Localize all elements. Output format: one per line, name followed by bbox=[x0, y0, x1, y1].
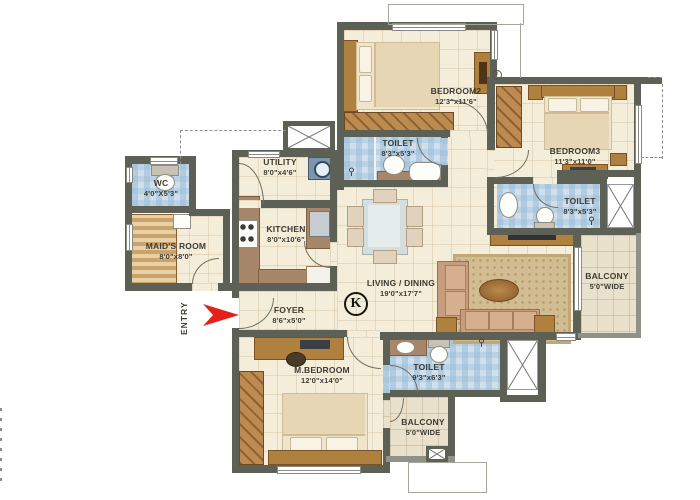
window bbox=[126, 224, 133, 251]
balcony-rail bbox=[578, 333, 641, 338]
washing-machine-door bbox=[314, 161, 331, 178]
wall bbox=[337, 22, 344, 190]
balcony-right-label: BALCONY 5'0"WIDE bbox=[576, 271, 638, 291]
window bbox=[556, 333, 576, 341]
living-dining-label: LIVING / DINING 19'0"x17'7" bbox=[352, 278, 450, 298]
wall bbox=[538, 337, 546, 402]
projection-dashed-line bbox=[648, 77, 662, 78]
maids-room-label: MAID'S ROOM 8'0"x8'0" bbox=[134, 241, 218, 261]
bedroom3-blanket bbox=[545, 112, 609, 149]
window bbox=[150, 157, 178, 165]
bedroom2-dresser-top bbox=[479, 62, 487, 84]
shower-icon bbox=[587, 216, 596, 225]
mbedroom-wardrobe bbox=[239, 371, 264, 465]
room-dims: 8'0"x8'0" bbox=[134, 252, 218, 261]
kitchen-label: KITCHEN 8'0"x10'6" bbox=[250, 224, 322, 244]
door-gap bbox=[383, 365, 390, 393]
mbedroom-blanket bbox=[283, 394, 365, 436]
room-name: BEDROOM2 bbox=[431, 86, 482, 96]
room-dims: 12'0"x14'0" bbox=[280, 376, 364, 385]
window bbox=[277, 466, 361, 474]
dining-chair bbox=[406, 206, 423, 227]
toilet2-wc bbox=[383, 155, 405, 175]
entry-arrow-icon bbox=[202, 302, 240, 328]
cropped-edge-marks bbox=[0, 408, 2, 486]
window bbox=[635, 105, 642, 164]
master-toilet-label: TOILET 9'3"x6'3" bbox=[397, 362, 461, 382]
floor-plan: x K ENTRY BEDROOM2 12'3"x11'6" TOILET 8'… bbox=[0, 0, 700, 500]
door-gap bbox=[487, 150, 495, 177]
sofa-cushion bbox=[465, 311, 489, 330]
dining-chair bbox=[373, 189, 397, 203]
wall bbox=[330, 266, 337, 291]
wc-label: WC 4'0"X5'3" bbox=[130, 178, 192, 198]
dining-chair bbox=[347, 206, 364, 227]
room-dims: 11'3"x11'0" bbox=[532, 157, 618, 166]
sofa-cushion bbox=[489, 311, 513, 330]
mtoilet-sink bbox=[396, 341, 415, 354]
dining-chair bbox=[347, 228, 364, 247]
maids-table bbox=[173, 214, 191, 229]
utility-label: UTILITY 8'0"x4'6" bbox=[244, 157, 316, 177]
wall bbox=[125, 283, 192, 291]
mtoilet-wc bbox=[430, 346, 448, 363]
room-name: MAID'S ROOM bbox=[146, 241, 206, 251]
room-name: BALCONY bbox=[401, 417, 444, 427]
room-dims: 8'6"x5'0" bbox=[258, 316, 320, 325]
room-name: KITCHEN bbox=[266, 224, 305, 234]
mbedroom-desk-item bbox=[300, 340, 330, 349]
door-gap bbox=[383, 400, 390, 428]
toilet3-label: TOILET 8'3"x5'3" bbox=[546, 196, 614, 216]
room-name: TOILET bbox=[382, 138, 413, 148]
shaft-duct bbox=[426, 446, 448, 462]
foyer-label: FOYER 8'6"x5'0" bbox=[258, 305, 320, 325]
pillow bbox=[580, 98, 609, 112]
dining-chair bbox=[373, 250, 397, 264]
room-dims: 8'3"x5'3" bbox=[362, 149, 434, 158]
pillow bbox=[359, 75, 372, 102]
shaft-duct bbox=[507, 340, 538, 390]
door-gap bbox=[347, 330, 380, 337]
wall bbox=[337, 130, 450, 137]
balcony-bottom-label: BALCONY 5'0"WIDE bbox=[392, 417, 454, 437]
master-bedroom-label: M.BEDROOM 12'0"x14'0" bbox=[280, 365, 364, 385]
door-gap bbox=[533, 177, 557, 184]
bedroom3-label: BEDROOM3 11'3"x11'0" bbox=[532, 146, 618, 166]
wall bbox=[337, 180, 448, 187]
pillow bbox=[548, 98, 577, 112]
room-name: TOILET bbox=[564, 196, 595, 206]
room-dims: 8'0"x4'6" bbox=[244, 168, 316, 177]
shower-icon bbox=[347, 167, 356, 176]
coffee-table bbox=[479, 279, 519, 302]
room-dims: 4'0"X5'3" bbox=[130, 189, 192, 198]
toilet3-sink bbox=[499, 192, 518, 218]
room-name: LIVING / DINING bbox=[367, 278, 435, 288]
door-gap bbox=[192, 283, 218, 291]
pillow bbox=[359, 46, 372, 73]
room-name: BALCONY bbox=[585, 271, 628, 281]
mbedroom-bed-headboard bbox=[268, 450, 382, 465]
wall bbox=[223, 209, 230, 291]
wall bbox=[487, 177, 494, 235]
projection-dashed-line bbox=[662, 84, 663, 159]
room-dims: 8'3"x5'3" bbox=[546, 207, 614, 216]
wall bbox=[330, 150, 337, 242]
room-dims: 5'0"WIDE bbox=[392, 428, 454, 437]
toilet2-tub bbox=[409, 162, 441, 182]
room-dims: 12'3"x11'6" bbox=[408, 97, 504, 106]
shower-icon bbox=[477, 338, 486, 347]
room-name: BEDROOM3 bbox=[550, 146, 601, 156]
wall bbox=[232, 330, 347, 337]
vent-symbol: x bbox=[492, 70, 502, 80]
window bbox=[491, 30, 498, 60]
projection-dashed-line bbox=[180, 130, 181, 164]
room-name: WC bbox=[154, 178, 169, 188]
bedroom2-label: BEDROOM2 12'3"x11'6" bbox=[408, 86, 504, 106]
room-name: FOYER bbox=[274, 305, 304, 315]
projection-dashed-line bbox=[641, 157, 662, 158]
wall bbox=[494, 177, 533, 184]
wall bbox=[232, 150, 239, 291]
wall bbox=[557, 170, 641, 177]
door-gap bbox=[330, 242, 337, 266]
wall bbox=[487, 228, 641, 235]
room-dims: 19'0"x17'7" bbox=[352, 289, 450, 298]
toilet2-label: TOILET 8'3"x5'3" bbox=[362, 138, 434, 158]
room-dims: 5'0"WIDE bbox=[576, 282, 638, 291]
shaft-duct bbox=[283, 121, 335, 153]
entry-label: ENTRY bbox=[179, 291, 189, 335]
chajja-line bbox=[520, 23, 521, 78]
wall bbox=[261, 200, 337, 208]
dining-chair bbox=[406, 228, 423, 247]
room-name: M.BEDROOM bbox=[294, 365, 350, 375]
room-name: TOILET bbox=[413, 362, 444, 372]
chajja-outline bbox=[388, 4, 524, 25]
room-dims: 9'3"x6'3" bbox=[397, 373, 461, 382]
projection-dashed-line bbox=[180, 130, 286, 131]
dining-table-glass bbox=[368, 205, 400, 247]
room-name: UTILITY bbox=[263, 157, 297, 167]
chajja-outline bbox=[408, 462, 487, 493]
room-dims: 8'0"x10'6" bbox=[250, 235, 322, 244]
wall bbox=[125, 206, 196, 213]
